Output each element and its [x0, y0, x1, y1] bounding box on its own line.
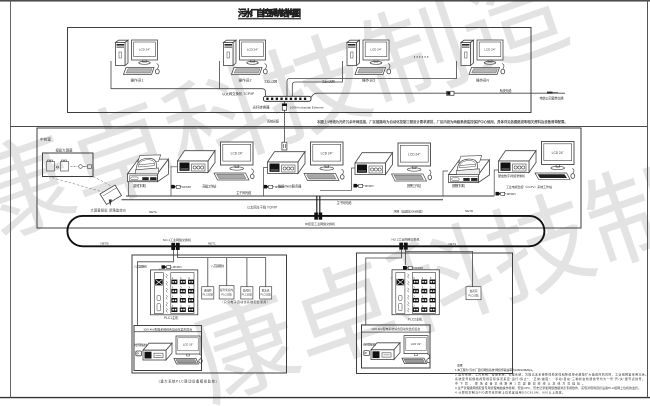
svg-text:操作员1: 操作员1: [131, 78, 144, 83]
svg-text:环网（自适应10M/光缆）: 环网（自适应10M/光缆）: [394, 209, 425, 214]
svg-text:电信公司宽带交换: 电信公司宽带交换: [540, 95, 565, 100]
svg-text:以太网主干线 TCP/IP: 以太网主干线 TCP/IP: [247, 204, 277, 209]
svg-text:10/0.4kV配电系统综合自动化监控后台: 10/0.4kV配电系统综合自动化监控后台: [371, 326, 420, 331]
svg-text:报警工作站: 报警工作站: [407, 183, 422, 188]
svg-text:主干网光缆: 主干网光缆: [337, 200, 353, 205]
svg-text:八芯屏蔽线: 八芯屏蔽线: [211, 263, 224, 268]
svg-text:加药间: 加药间: [470, 289, 478, 293]
svg-text:2.监控系统、工控系统、设备系统、管理系统，为提高本系统整体: 2.监控系统、工控系统、设备系统、管理系统，为提高本系统整体稳定性和降低单点故障…: [455, 371, 648, 376]
svg-text:NETA: NETA: [149, 210, 157, 214]
svg-text:系统型号和规格视现场实际情况来定“运行/停止”、“正常/故障: 系统型号和规格视现场实际情况来定“运行/停止”、“正常/故障”、“手动/自动”三…: [455, 376, 645, 381]
svg-text:投影大屏幕: 投影大屏幕: [56, 148, 74, 153]
svg-text:硬盘数字视频录像机: 硬盘数字视频录像机: [498, 173, 526, 178]
svg-text:光纤现场总线: 光纤现场总线: [363, 343, 376, 347]
svg-text:（重大系统PLC联动设备模拟监控）: （重大系统PLC联动设备模拟监控）: [157, 379, 220, 384]
svg-text:NETD: NETD: [465, 209, 474, 213]
svg-text:工业电视监控（CCTV）系统工作站: 工业电视监控（CCTV）系统工作站: [506, 184, 552, 189]
svg-text:大屏幕投影 闭路监控仪: 大屏幕投影 闭路监控仪: [91, 207, 127, 212]
svg-text:工业以太网: 工业以太网: [322, 79, 335, 84]
svg-text:八芯屏蔽线: 八芯屏蔽线: [134, 263, 147, 268]
svg-text:操作员2: 操作员2: [239, 78, 252, 83]
svg-text:NET2: NET2: [449, 242, 457, 246]
svg-text:报警打印机: 报警打印机: [452, 183, 466, 188]
svg-text:脱水机: 脱水机: [262, 289, 270, 293]
svg-text:系统光缆: 系统光缆: [500, 88, 513, 93]
svg-text:PLC分站: PLC分站: [203, 293, 214, 297]
svg-text:中控室工业网络交换机: 中控室工业网络交换机: [305, 221, 336, 226]
svg-text:NETB: NETB: [101, 242, 109, 246]
svg-text:PLC分站: PLC分站: [221, 292, 232, 296]
svg-text:NO.2工业网络交换机: NO.2工业网络交换机: [392, 236, 420, 241]
svg-text:主干网光缆: 主干网光缆: [236, 190, 252, 195]
svg-text:系统光缆: 系统光缆: [267, 119, 280, 124]
svg-text:中控室: 中控室: [40, 137, 51, 142]
svg-text:以太网交换机 TCP/IP: 以太网交换机 TCP/IP: [222, 91, 255, 96]
svg-text:100M Industrial Ethernet: 100M Industrial Ethernet: [290, 106, 324, 110]
svg-text:光纤转换器: 光纤转换器: [253, 105, 271, 110]
svg-text:进线柜: 进线柜: [204, 289, 212, 293]
svg-text:鼓风机: 鼓风机: [243, 289, 251, 293]
svg-text:（只与电子自动化系统配套使用）: （只与电子自动化系统配套使用）: [221, 299, 271, 304]
svg-text:激光打印机: 激光打印机: [133, 183, 147, 188]
svg-text:操作员N: 操作员N: [476, 78, 489, 83]
svg-text:......: ......: [414, 53, 430, 60]
svg-text:污水厂自控系统结构图: 污水厂自控系统结构图: [238, 7, 301, 18]
svg-text:4.计算机控制与PID调节采控制上位机宜选用DDC810M、: 4.计算机控制与PID调节采控制上位机宜选用DDC810M、600以上配置。: [455, 389, 565, 394]
svg-text:提升泵房内: 提升泵房内: [220, 288, 233, 292]
svg-text:PLC分站: PLC分站: [468, 293, 479, 297]
svg-text:PLC分站: PLC分站: [260, 293, 271, 297]
svg-text:3.生产管理级网络配置专用管理电脑操作终端，安装OPC、历史: 3.生产管理级网络配置专用管理电脑操作终端，安装OPC、历史记录和网络数据浏览专…: [455, 385, 641, 390]
svg-text:NET1: NET1: [208, 242, 216, 246]
svg-text:NO.1工业网络交换机: NO.1工业网络交换机: [163, 237, 191, 242]
svg-text:注释：: 注释：: [457, 362, 465, 367]
svg-text:工业以太网: 工业以太网: [264, 79, 277, 84]
svg-text:高级工作站: 高级工作站: [202, 184, 217, 189]
svg-text:PLC2主机: PLC2主机: [408, 317, 423, 322]
svg-text:1.本工程为“污水厂自控网络系统”网络传输速率为10M/10: 1.本工程为“污水厂自控网络系统”网络传输速率为10M/100Mbps。: [455, 367, 535, 372]
svg-text:PLC分站: PLC分站: [242, 293, 253, 297]
svg-text:本图上1号线为光纤冗余环网连接，厂区链路均为自动化控制工程设: 本图上1号线为光纤冗余环网连接，厂区链路均为自动化控制工程设计要求规范，厂区内设…: [317, 119, 568, 124]
svg-text:10/0.4kV配电系统综合自动化监控后台: 10/0.4kV配电系统综合自动化监控后台: [143, 326, 192, 331]
svg-text:PLC1主机: PLC1主机: [164, 315, 179, 320]
svg-text:光纤现场总线: 光纤现场总线: [134, 343, 147, 347]
